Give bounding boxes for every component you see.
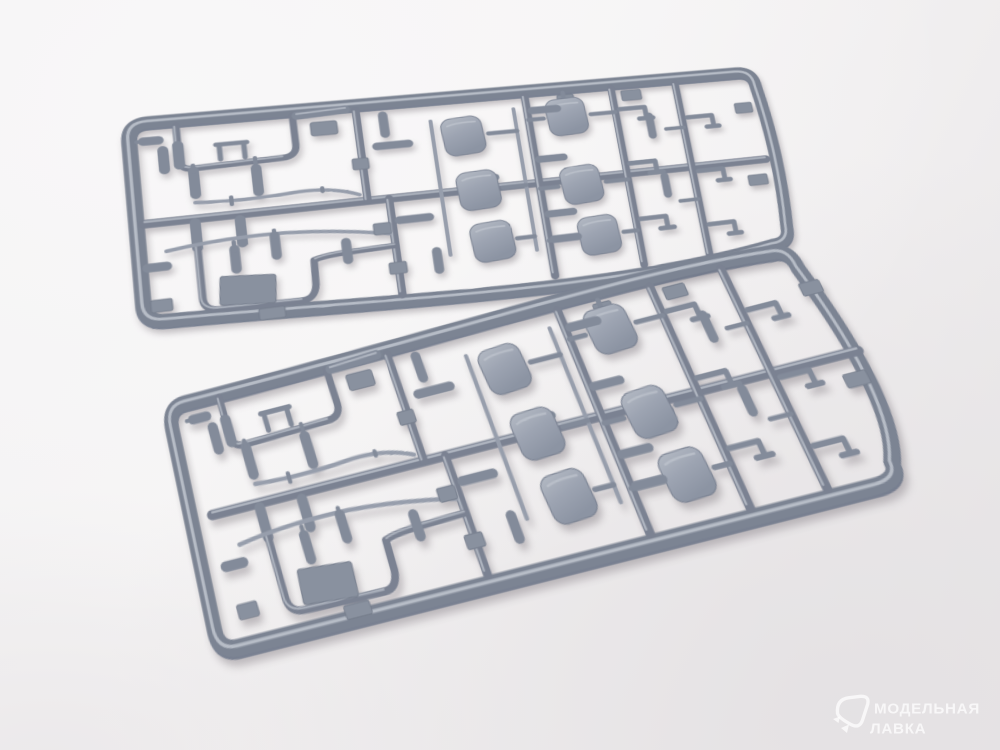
svg-text:ЛАВКА: ЛАВКА (870, 721, 926, 738)
svg-text:МОДЕЛЬНАЯ: МОДЕЛЬНАЯ (874, 701, 980, 718)
